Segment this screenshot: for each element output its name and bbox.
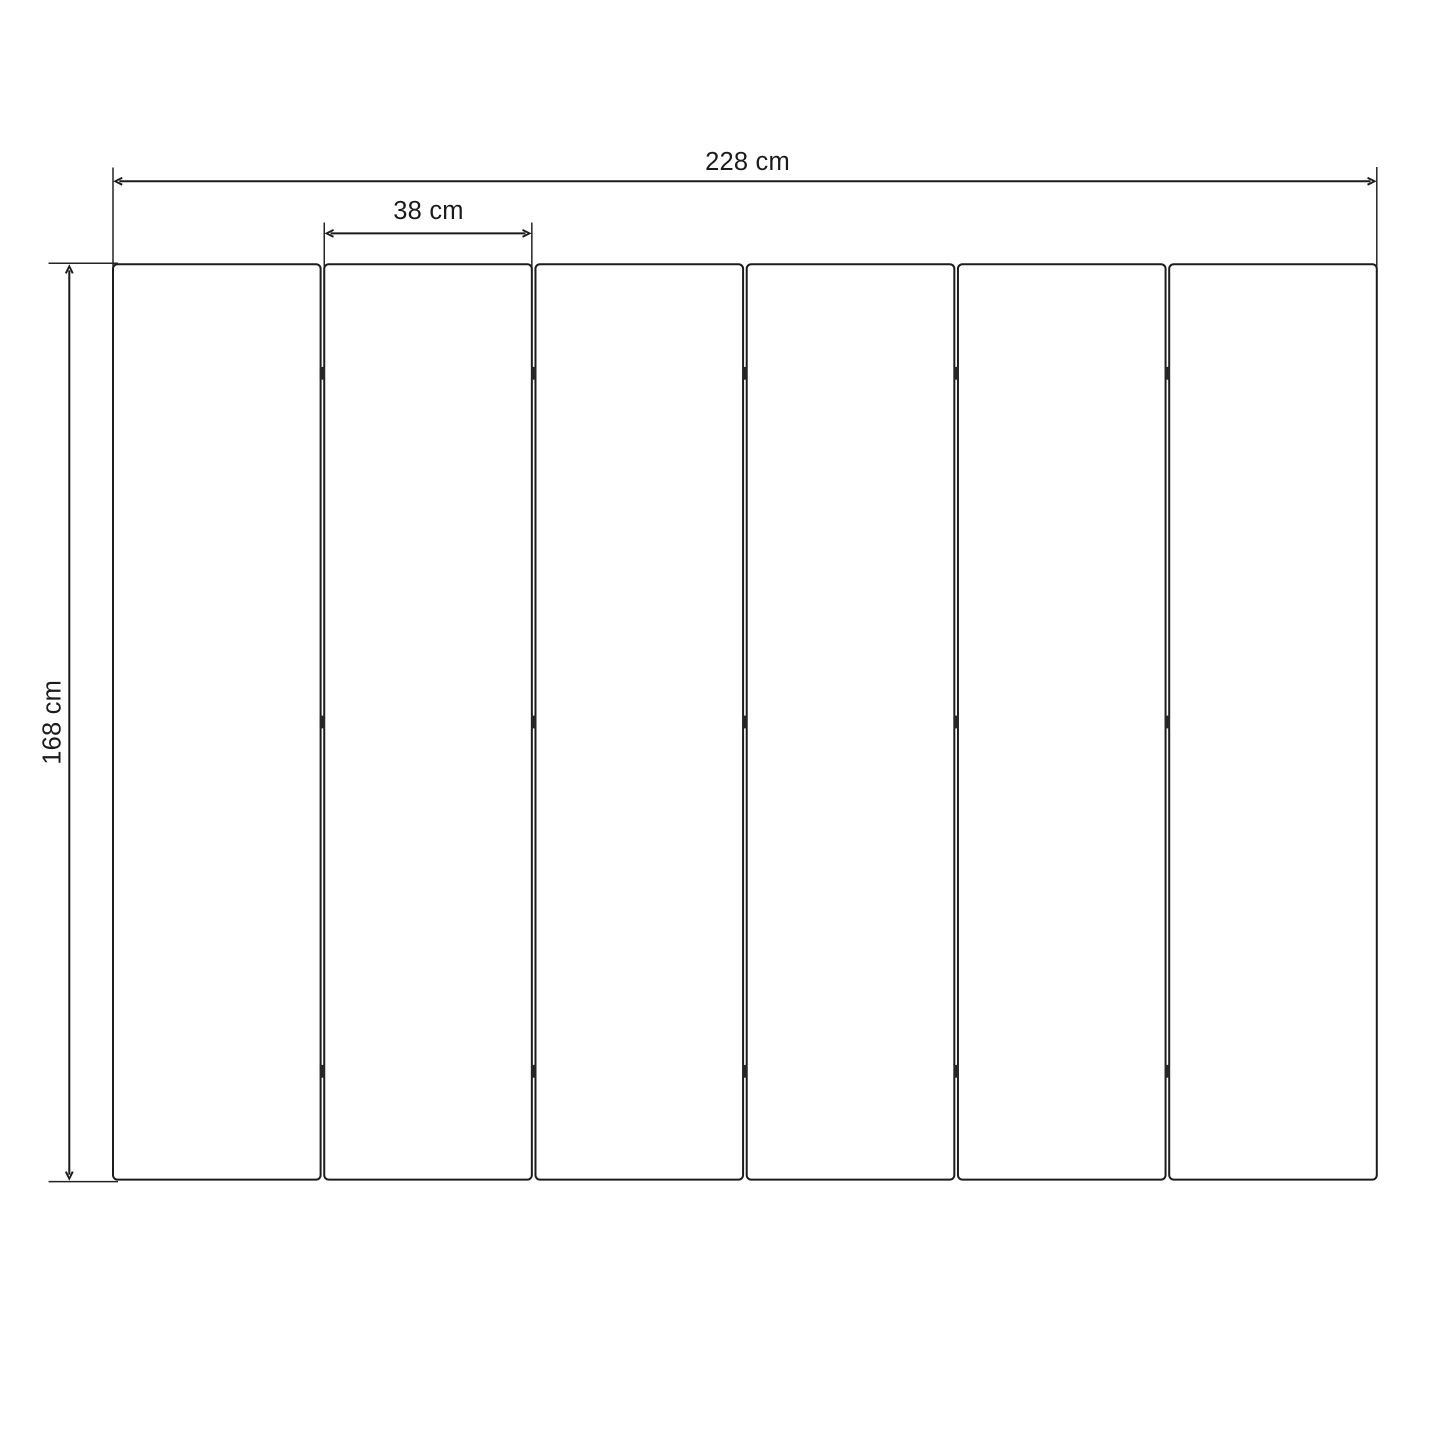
- svg-text:168 cm: 168 cm: [39, 680, 67, 765]
- svg-text:38 cm: 38 cm: [393, 197, 463, 225]
- svg-text:228 cm: 228 cm: [705, 148, 790, 176]
